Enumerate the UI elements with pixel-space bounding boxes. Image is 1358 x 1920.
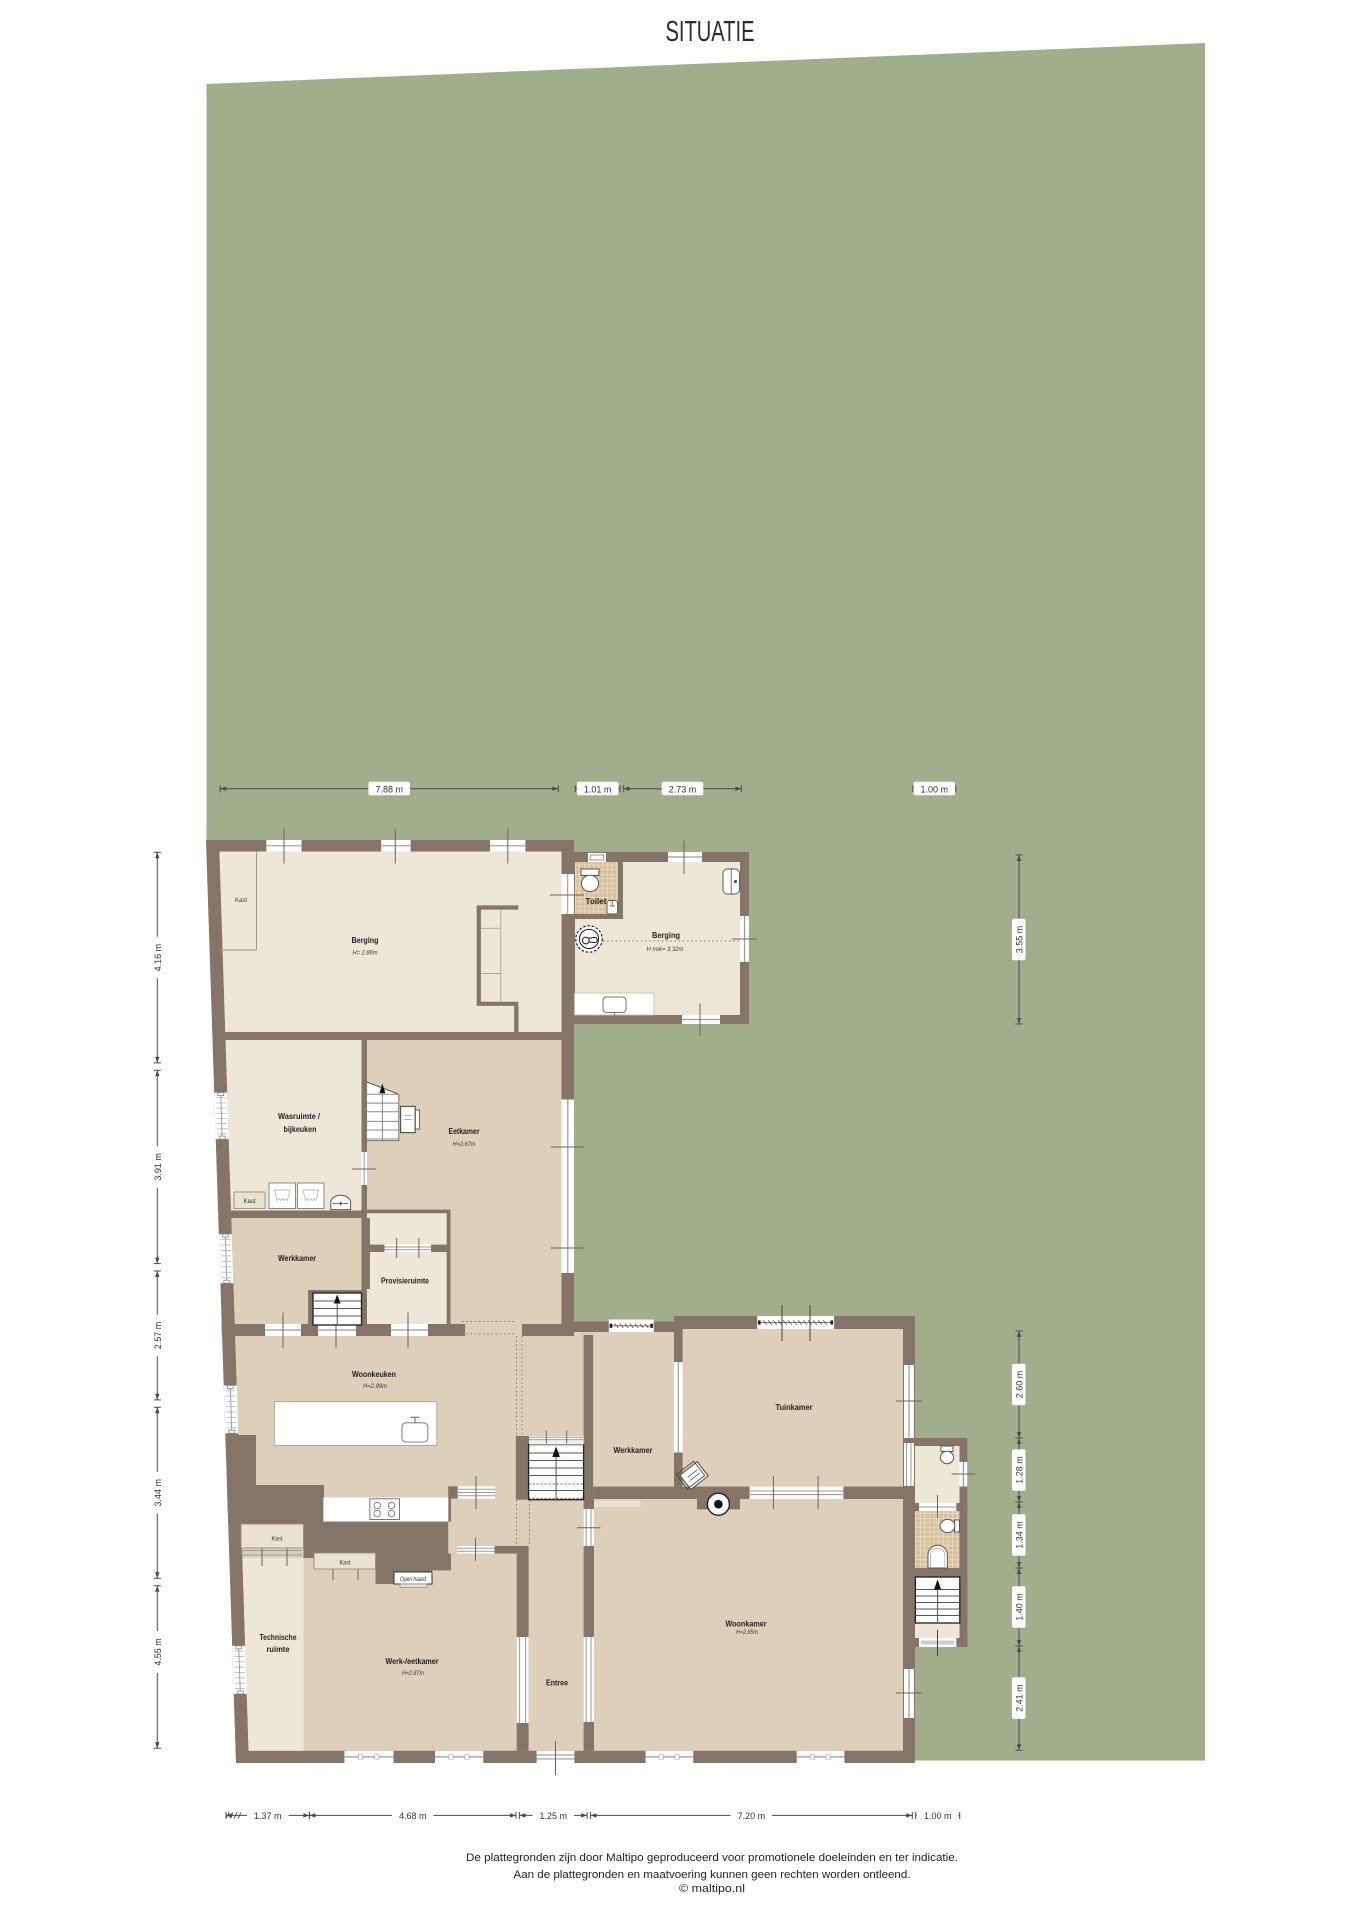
svg-text:Aan de plattegronden en maatvo: Aan de plattegronden en maatvoering kunn…: [514, 1869, 911, 1881]
svg-text:H=2.99m: H=2.99m: [363, 1383, 387, 1390]
svg-text:1.34 m: 1.34 m: [1015, 1521, 1025, 1549]
svg-text:1.00 m: 1.00 m: [921, 784, 949, 794]
svg-text:2.41 m: 2.41 m: [1015, 1684, 1025, 1712]
svg-text:De plattegronden zijn door Mal: De plattegronden zijn door Maltipo gepro…: [466, 1852, 958, 1864]
svg-text:Werkkamer: Werkkamer: [614, 1445, 654, 1455]
svg-text:Provisieruimte: Provisieruimte: [381, 1276, 429, 1286]
svg-text:4.16 m: 4.16 m: [153, 944, 163, 972]
svg-text:1.01 m: 1.01 m: [584, 784, 612, 794]
svg-text:2.57 m: 2.57 m: [153, 1322, 163, 1350]
svg-text:SITUATIE: SITUATIE: [666, 16, 755, 48]
svg-text:4.55 m: 4.55 m: [153, 1638, 163, 1666]
svg-text:3.91 m: 3.91 m: [153, 1153, 163, 1181]
svg-text:Kast: Kast: [235, 898, 247, 904]
svg-text:H nok= 3.32m: H nok= 3.32m: [647, 946, 684, 953]
svg-text:3.44 m: 3.44 m: [153, 1479, 163, 1507]
svg-text:Entree: Entree: [546, 1678, 568, 1688]
svg-text:1.28 m: 1.28 m: [1015, 1456, 1025, 1484]
svg-text:Woonkamer: Woonkamer: [726, 1619, 768, 1629]
svg-text:Eetkamer: Eetkamer: [449, 1126, 481, 1136]
svg-text:Woonkeuken: Woonkeuken: [352, 1369, 396, 1379]
svg-text:1.37 m: 1.37 m: [254, 1811, 282, 1821]
svg-text:2.73 m: 2.73 m: [669, 784, 697, 794]
svg-text:Tuinkamer: Tuinkamer: [776, 1402, 814, 1412]
svg-text:Berging: Berging: [652, 930, 680, 940]
svg-text:Technische: Technische: [260, 1632, 297, 1642]
svg-text:7.20 m: 7.20 m: [738, 1811, 766, 1821]
svg-text:H=2.67m: H=2.67m: [453, 1141, 476, 1148]
svg-text:4.68 m: 4.68 m: [399, 1811, 427, 1821]
svg-text:Toilet: Toilet: [586, 896, 607, 906]
svg-text:bijkeuken: bijkeuken: [284, 1124, 317, 1134]
svg-text:Kast: Kast: [340, 1561, 351, 1567]
svg-text:2.60 m: 2.60 m: [1015, 1371, 1025, 1399]
svg-text:H=2.85m: H=2.85m: [736, 1629, 758, 1636]
svg-text:Werkkamer: Werkkamer: [278, 1253, 317, 1263]
svg-text:1.40 m: 1.40 m: [1015, 1593, 1025, 1621]
svg-text:Kast: Kast: [244, 1199, 256, 1205]
svg-text:Kast: Kast: [272, 1537, 283, 1543]
svg-text:Werk-/eetkamer: Werk-/eetkamer: [386, 1656, 440, 1666]
svg-text:Berging: Berging: [352, 935, 379, 945]
svg-text:© maltipo.nl: © maltipo.nl: [679, 1883, 745, 1895]
svg-text:7.88 m: 7.88 m: [375, 784, 403, 794]
svg-text:Open haard: Open haard: [400, 1577, 427, 1583]
svg-text:H=2.87m: H=2.87m: [402, 1670, 424, 1677]
svg-text:1.00 m: 1.00 m: [924, 1811, 952, 1821]
svg-text:Wasruimte /: Wasruimte /: [278, 1111, 321, 1121]
svg-text:3.55 m: 3.55 m: [1015, 926, 1025, 954]
svg-text:1.25 m: 1.25 m: [539, 1811, 567, 1821]
svg-text:ruimte: ruimte: [267, 1644, 290, 1654]
svg-text:H= 2.86m: H= 2.86m: [353, 950, 378, 957]
